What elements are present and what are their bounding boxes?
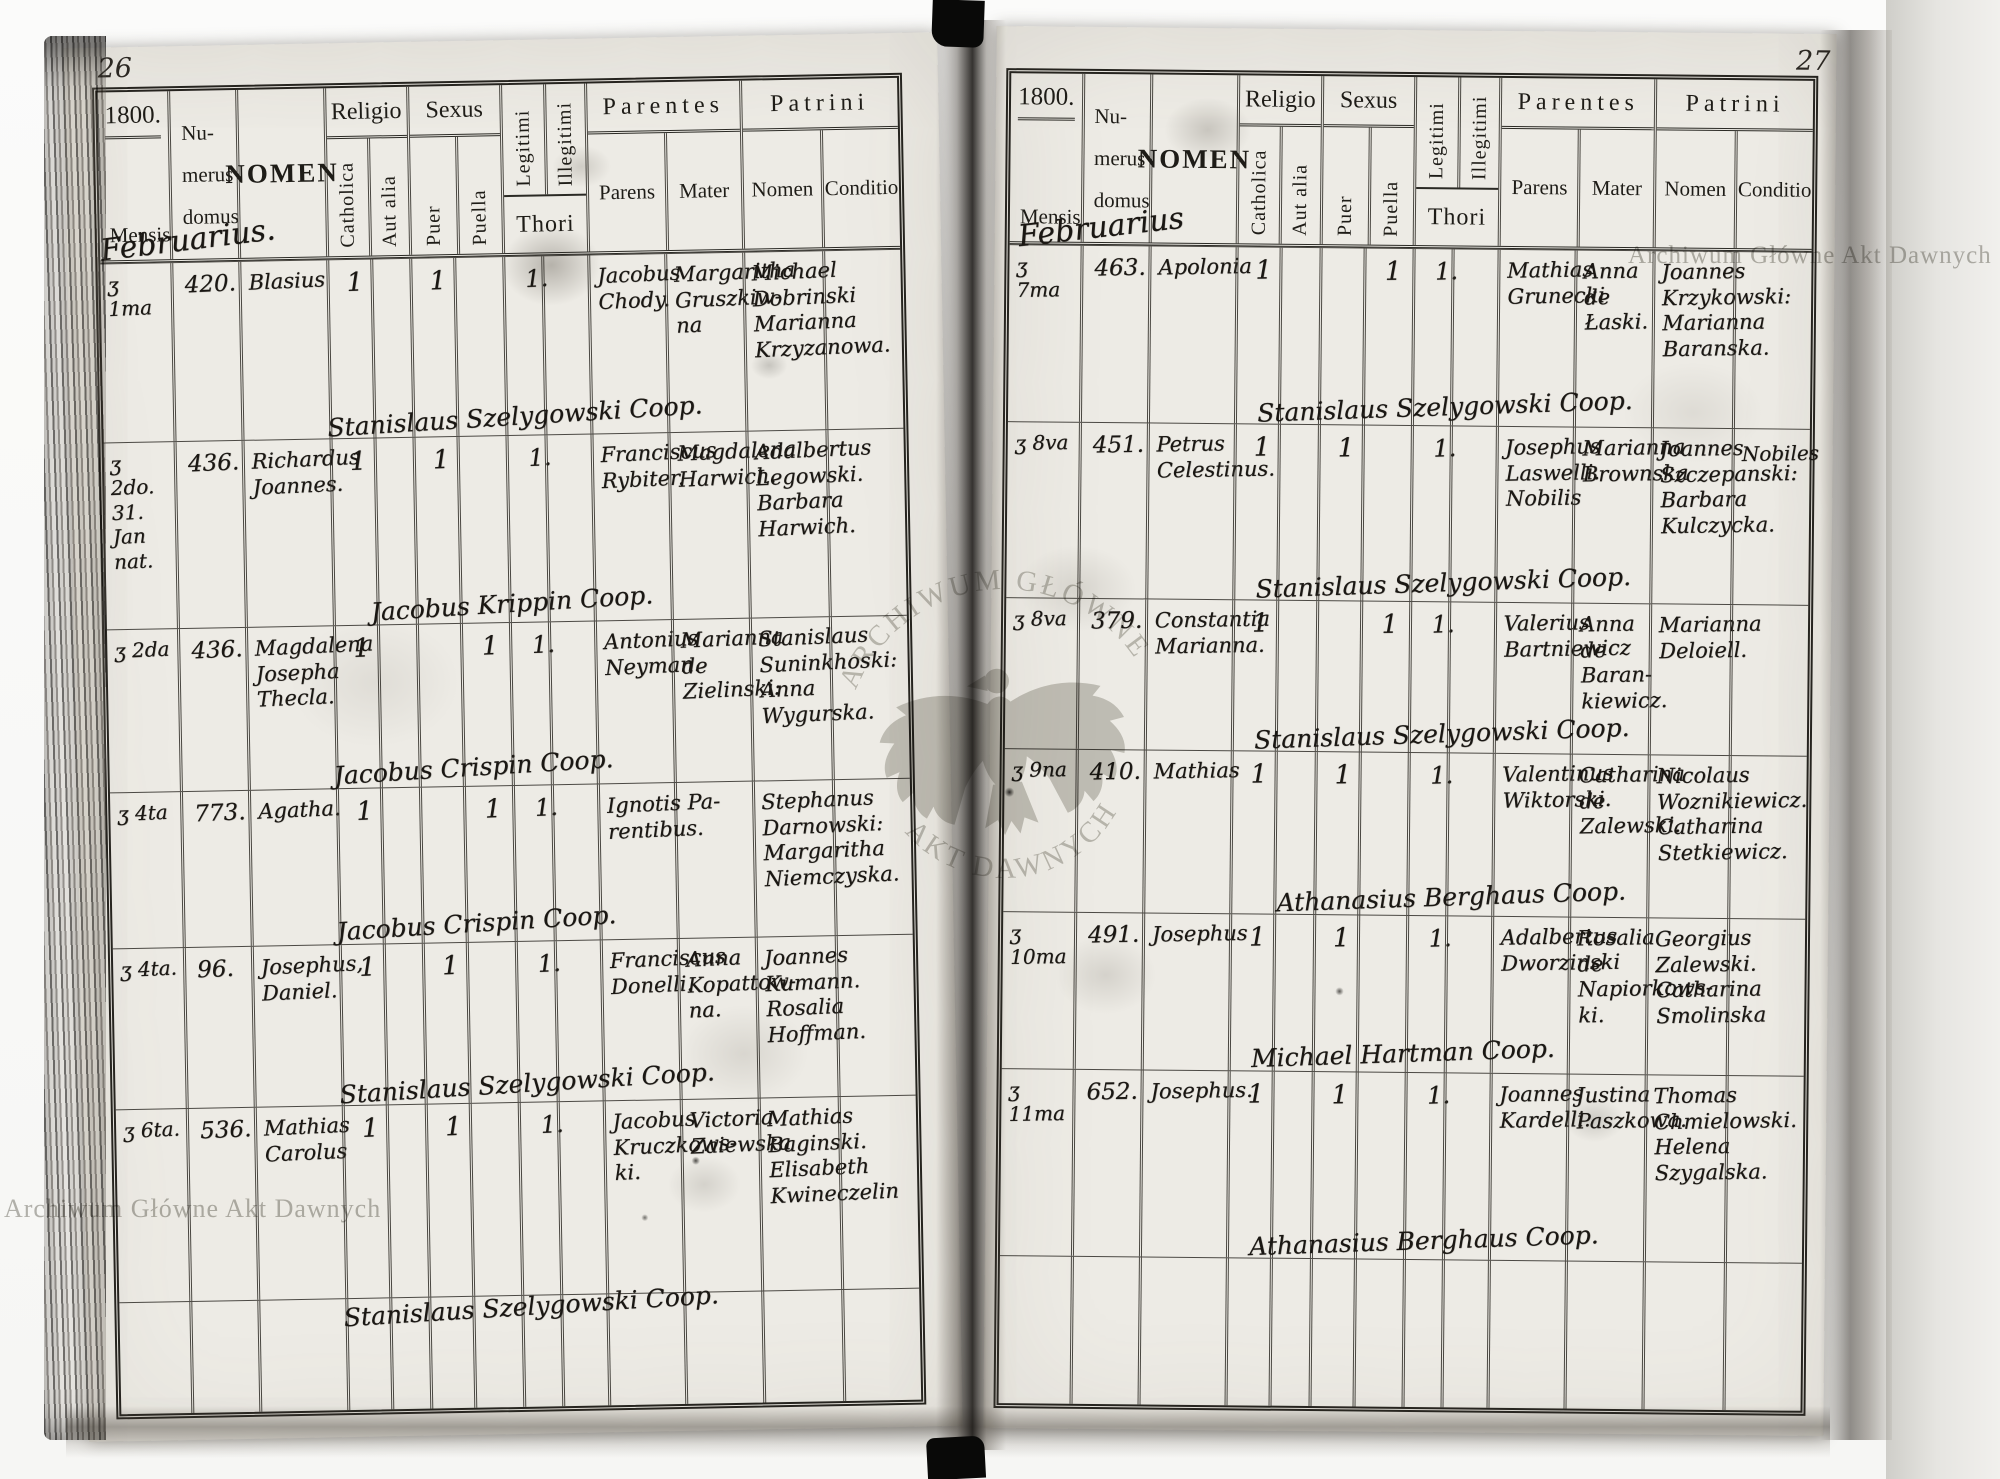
patrini-nomen-header: Nomen (742, 130, 822, 248)
mater-header: Mater (1577, 130, 1654, 248)
patrini-cell: Michael Dobrinski Marianna Krzyzanowa. (742, 251, 826, 430)
legitimi-header: Legitimi (1416, 77, 1458, 187)
puer-cell: 1 (424, 1104, 472, 1297)
legitimi-group-header: Legitimi Illegitimi Thori (499, 84, 588, 254)
parens-entry: Franciscus Donelli. (609, 946, 675, 1000)
patrini-entry: Georgius Zalewski. Catharina Smolinska (1655, 926, 1725, 1030)
religio-group-header: Religio Catholica Aut alia (323, 87, 409, 256)
patrini-cell: Joannes Kumann. Rosalia Hoffman. (754, 936, 838, 1097)
aut-alia-header: Aut alia (1279, 127, 1320, 244)
sexus-group-header: Sexus Puer Puella (1319, 76, 1414, 245)
register-page-right: 27 1800. Mensis Nu- merus domus NOMEN Re… (983, 26, 1836, 1436)
patrini-entry: Stephanus Darnowski: Margaritha Niemczys… (760, 787, 832, 892)
book-gutter-shadow (936, 20, 1006, 1450)
patrini-entry: Stanislaus Suninkhoski: Anna Wygurska. (757, 624, 829, 729)
patrini-cell: Nicolaus Woznikiewicz. Catharina Stetkie… (1646, 755, 1729, 918)
catholica-entry: 1 (348, 952, 380, 985)
binding-tie-bottom (926, 1436, 986, 1479)
house-cell: 96. (183, 947, 254, 1108)
puer-entry: 1 (1327, 433, 1359, 465)
register-row: ʒ 9na410.Mathias111.Valentinus Wiktorski… (1003, 748, 1807, 919)
mater-cell: Magdalena Harwich. (667, 432, 748, 619)
sexus-label: Sexus (409, 85, 500, 138)
mater-cell: Victoria Zaiewska (680, 1099, 761, 1292)
conditio-cell (1726, 919, 1805, 1076)
mater-entry: Marianna de Zielinski: (680, 626, 748, 706)
legitimi-group-header: Legitimi Illegitimi Thori (1412, 77, 1499, 246)
register-row: ʒ 10ma491.Josephus111.Adalbertus Dworzin… (1002, 911, 1805, 1076)
conditio-cell: Nobiles (1730, 429, 1809, 605)
patrini-entry: Marianna Deloiell. (1659, 612, 1728, 664)
parentes-group-header: Parentes Parens Mater (584, 81, 741, 252)
conditio-cell (835, 935, 916, 1096)
puer-entry: 1 (422, 445, 454, 478)
catholica-cell: 1 (341, 1105, 389, 1298)
catholica-entry: 1 (1239, 922, 1271, 954)
puer-entry: 1 (1324, 760, 1356, 792)
nomen-entry: Constantia Marianna. (1154, 607, 1229, 659)
patrini-entry: Nicolaus Woznikiewicz. Catharina Stetkie… (1657, 763, 1727, 867)
nomen-cell: Apolonia (1147, 246, 1236, 423)
patrini-entry: Adalbertus Legowski. Barbara Harwich. (754, 437, 826, 542)
house-cell: 451. (1077, 423, 1147, 599)
date-entry: ʒ 7ma (1016, 253, 1077, 303)
patrini-entry: Mathias Baginski. Elisabeth Kwineczelin (766, 1104, 838, 1209)
catholica-cell: 1 (1226, 1071, 1272, 1257)
puella-entry: 1 (469, 631, 506, 664)
mater-entry: Victoria Zaiewska (689, 1106, 756, 1160)
conditio-header: Conditio (1734, 131, 1813, 249)
register-row: ʒ 2do. 31. Jan nat.436.Richardus Joannes… (104, 428, 907, 630)
patrini-cell: Stephanus Darnowski: Margaritha Niemczys… (751, 780, 835, 936)
nomen-entry: Josephus. (1150, 1078, 1225, 1105)
nomen-entry: Agatha. (258, 796, 333, 825)
puer-header: Puer (1322, 127, 1368, 244)
catholica-entry: 1 (345, 796, 377, 829)
register-row: ʒ 8va379.Constantia Marianna.111.Valeriu… (1005, 597, 1808, 756)
aut_alia-cell (385, 1105, 428, 1298)
register-row: ʒ 8va451.Petrus Celestinus.111.Josephus … (1006, 421, 1810, 605)
nomen-cell: Richardus Joannes. (242, 439, 333, 627)
patrini-cell: Adalbertus Legowski. Barbara Harwich. (745, 430, 829, 617)
patrini-group-header: Patrini Nomen Conditio (739, 78, 900, 249)
date-cell: ʒ 7ma (1008, 245, 1080, 422)
patrini-group-header: Patrini Nomen Conditio (1653, 79, 1813, 249)
parentes-label: Parentes (587, 81, 739, 135)
patrini-entry: Joannes Krzykowski: Marianna Baranska. (1661, 259, 1731, 363)
parentes-label: Parentes (1502, 78, 1654, 130)
patrini-cell: Marianna Deloiell. (1648, 604, 1730, 755)
conditio-cell (832, 779, 912, 935)
house-entry: 536. (196, 1115, 252, 1145)
date-entry: ʒ 8va (1013, 606, 1074, 631)
register-page-left: 26 1800. Mensis Nu- merus domus NOMEN Re… (63, 32, 962, 1442)
mater-entry: Justina Paszkowa. (1576, 1082, 1642, 1134)
scanner-background (1886, 0, 2000, 1479)
patrini-entry: Thomas Chmielowski. Helena Szygalska. (1653, 1083, 1723, 1187)
religio-label: Religio (1240, 75, 1321, 127)
nomen-entry: Blasius (248, 267, 323, 296)
right-page-edge (1820, 30, 1892, 1440)
mater-cell: Marianna de Zielinski: (671, 619, 752, 782)
house-cell: 463. (1079, 246, 1149, 423)
parens-entry: Jacobus Kruczkows- ki. (612, 1107, 679, 1187)
patrini-cell: Stanislaus Suninkhoski: Anna Wygurska. (748, 617, 832, 780)
conditio-header: Conditio (820, 129, 900, 247)
date-entry: ʒ 9na (1011, 757, 1072, 782)
legitimi-header: Legitimi (502, 84, 545, 195)
illegitimi-header: Illegitimi (543, 84, 586, 195)
house-cell: 491. (1072, 913, 1142, 1070)
date-cell: ʒ 1ma (100, 263, 174, 442)
date-entry: ʒ 6ta. (123, 1116, 184, 1143)
register-row: ʒ 2da436.Magdalena Josepha Thecla.111.An… (107, 615, 910, 793)
puella-header: Puella (455, 136, 502, 254)
patrini-entry: Joannes Szczepanski: Barbara Kulczycka. (1660, 436, 1730, 540)
mater-entry: Rosalia de Napiorkows- ki. (1577, 925, 1643, 1028)
date-entry: ʒ 2do. 31. Jan nat. (109, 449, 175, 574)
mater-cell: Rosalia de Napiorkows- ki. (1567, 918, 1646, 1075)
nomen-entry: Josephus, Daniel. (261, 952, 337, 1006)
mater-header: Mater (664, 132, 742, 250)
nomen-cell: Magdalena Josepha Thecla. (245, 626, 335, 790)
date-cell: ʒ 8va (1006, 422, 1078, 598)
nomen-entry: Petrus Celestinus. (1156, 431, 1231, 483)
puer-header: Puer (410, 137, 457, 255)
parens-entry: Franciscus Rybiter. (600, 440, 666, 494)
mater-entry: Marianna Brownska (1583, 435, 1649, 487)
date-cell: ʒ 9na (1003, 749, 1075, 912)
conditio-cell (1732, 252, 1811, 429)
nomen-entry: Josephus (1152, 921, 1227, 948)
religio-label: Religio (326, 87, 407, 139)
catholica-entry: 1 (342, 633, 374, 666)
date-entry: ʒ 8va (1015, 430, 1076, 455)
house-cell: 773. (180, 791, 251, 947)
house-cell: 410. (1074, 750, 1144, 913)
patrini-label: Patrini (742, 78, 898, 132)
parens-entry: Josephus Laswelli. Nobilis (1505, 435, 1570, 513)
nomen-entry: Apolonia (1158, 254, 1233, 281)
date-cell: ʒ 8va (1005, 598, 1077, 749)
nomen-entry: Mathias (1153, 758, 1228, 785)
date-cell: ʒ 2do. 31. Jan nat. (104, 442, 178, 629)
mater-entry: Magdalena Harwich. (677, 439, 744, 493)
conditio-cell (1729, 605, 1808, 756)
mater-entry: Anna Kopattow- na. (686, 945, 754, 1025)
mater-entry: Anna de Baran- kiewicz. (1580, 611, 1646, 714)
parens-header: Parens (588, 133, 666, 251)
conditio-cell (838, 1096, 919, 1289)
parens-entry: Mathias Grunecki (1507, 258, 1572, 310)
puer-entry: 1 (434, 1112, 466, 1145)
catholica-entry: 1 (1242, 608, 1274, 640)
parens-entry: Valerius Bartniewicz (1504, 611, 1569, 663)
register-row: ʒ 6ta.536.Mathias Carolus111.Jacobus Kru… (116, 1095, 919, 1303)
book-spine (44, 36, 106, 1440)
date-cell: ʒ 11ma (1000, 1069, 1072, 1256)
puer-entry: 1 (419, 266, 451, 299)
register-scan: 26 1800. Mensis Nu- merus domus NOMEN Re… (0, 0, 2000, 1479)
register-table-right: 1800. Mensis Nu- merus domus NOMEN Relig… (993, 68, 1818, 1416)
register-row: ʒ 1ma420.Blasius111.Jacobus Chody.Margar… (100, 249, 903, 443)
date-cell: ʒ 2da (107, 629, 180, 792)
patrini-cell: Joannes Szczepanski: Barbara Kulczycka. (1649, 428, 1732, 604)
puella-cell (468, 1103, 520, 1296)
year-label: 1800. (104, 101, 161, 139)
thori-header: Thori (504, 194, 588, 254)
register-row: ʒ 4ta.96.Josephus, Daniel.111.Franciscus… (113, 934, 916, 1110)
patrini-entry: Michael Dobrinski Marianna Krzyzanowa. (751, 258, 823, 363)
nomen-entry: Mathias Carolus (264, 1113, 340, 1167)
house-cell: 436. (177, 628, 248, 791)
conditio-cell (1724, 1076, 1804, 1263)
religio-group-header: Religio Catholica Aut alia (1236, 75, 1321, 244)
house-cell: 379. (1075, 599, 1145, 750)
date-entry: ʒ 4ta (117, 799, 178, 826)
house-entry: 96. (193, 954, 249, 984)
thori-cell: 1. (517, 1102, 560, 1295)
register-row: ʒ 11ma652.Josephus.111.Joannes Kardelli.… (1000, 1068, 1804, 1263)
nomen-cell: Petrus Celestinus. (1145, 423, 1234, 599)
sexus-group-header: Sexus Puer Puella (406, 85, 502, 255)
patrini-cell: Joannes Krzykowski: Marianna Baranska. (1651, 251, 1734, 428)
puella-entry: 1 (472, 794, 509, 827)
conditio-cell (1727, 756, 1806, 919)
catholica-entry: 1 (1237, 1079, 1269, 1111)
date-entry: ʒ 1ma (107, 270, 170, 321)
nomen-cell: Agatha. (248, 789, 338, 946)
nomen-cell: Josephus. (1139, 1070, 1228, 1257)
nomen-entry: Magdalena Josepha Thecla. (255, 633, 333, 713)
catholica-entry: 1 (336, 267, 368, 300)
mater-entry: Anna de Łaski. (1584, 258, 1650, 336)
house-entry: 379. (1086, 607, 1142, 636)
date-cell: ʒ 4ta. (113, 948, 186, 1109)
conditio-cell (826, 429, 907, 616)
house-entry: 410. (1085, 758, 1141, 787)
nomen-cell: Blasius (239, 260, 329, 440)
parens-entry: Valentinus Wiktorski. (1502, 762, 1567, 814)
puella-entry: 1 (1369, 609, 1405, 641)
date-cell: ʒ 6ta. (116, 1109, 190, 1302)
house-entry: 773. (190, 798, 246, 828)
house-entry: 451. (1088, 431, 1144, 460)
nomen-cell: Mathias Carolus (254, 1106, 345, 1300)
binding-tie-top (931, 0, 985, 48)
mater-entry: Margaritha Gruszkiw- na (673, 260, 741, 340)
catholica-cell: 1 (1229, 751, 1275, 913)
patrini-entry: Joannes Kumann. Rosalia Hoffman. (763, 943, 835, 1048)
sexus-label: Sexus (1323, 76, 1414, 128)
parens-entry: Joannes Kardelli. (1499, 1082, 1564, 1134)
illegitimi-header: Illegitimi (1457, 77, 1499, 187)
puer-entry: 1 (1322, 923, 1354, 955)
parentes-group-header: Parentes Parens Mater (1498, 78, 1654, 247)
puella-entry: 1 (1373, 257, 1409, 289)
empty-tail-row (999, 1255, 1802, 1411)
patrini-cell: Thomas Chmielowski. Helena Szygalska. (1643, 1075, 1726, 1262)
catholica-entry: 1 (1244, 432, 1276, 464)
house-entry: 463. (1090, 254, 1146, 283)
parens-cell: Jacobus Kruczkows- ki. (603, 1100, 683, 1293)
house-entry: 436. (184, 448, 240, 478)
date-entry: ʒ 4ta. (120, 955, 181, 982)
aut-alia-header: Aut alia (367, 138, 409, 256)
parens-entry: Ignotis Pa- rentibus. (607, 788, 740, 845)
puer-entry: 1 (1321, 1080, 1353, 1112)
patrini-label: Patrini (1657, 79, 1813, 131)
patrini-cell: Georgius Zalewski. Catharina Smolinska (1645, 918, 1727, 1075)
illeg-cell (556, 1101, 606, 1294)
parens-entry: Antonius Neyman. (604, 627, 670, 681)
date-cell: ʒ 4ta (110, 792, 183, 948)
house-cell: 436. (174, 441, 245, 628)
patrini-cell: Mathias Baginski. Elisabeth Kwineczelin (757, 1097, 841, 1290)
date-entry: ʒ 2da (114, 636, 175, 663)
house-entry: 436. (187, 635, 243, 665)
parens-entry: Jacobus Chody. (597, 261, 663, 315)
conditio-cell (829, 616, 910, 779)
house-cell: 420. (171, 262, 242, 441)
patrini-nomen-header: Nomen (1656, 130, 1735, 248)
parens-header: Parens (1501, 129, 1578, 247)
nomen-cell: Constantia Marianna. (1144, 599, 1233, 750)
parens-entry: Adalbertus Dworzinski (1501, 925, 1566, 977)
nomen-cell: Josephus (1140, 913, 1229, 1070)
puella-header: Puella (1367, 128, 1413, 245)
conditio-entry: Nobiles (1742, 437, 1807, 466)
year-label: 1800. (1018, 83, 1075, 121)
puer-entry: 1 (431, 951, 463, 984)
mater-entry: Catharina de Zalewski. (1579, 762, 1645, 840)
house-entry: 652. (1082, 1078, 1138, 1107)
date-entry: ʒ 11ma (1008, 1077, 1069, 1127)
nomen-cell: Josephus, Daniel. (251, 945, 341, 1107)
nomen-entry: Richardus Joannes. (251, 446, 327, 500)
nomen-cell: Mathias (1142, 750, 1231, 913)
house-entry: 420. (180, 269, 236, 299)
register-row: ʒ 7ma463.Apolonia111.Mathias GruneckiAnn… (1008, 244, 1812, 429)
house-cell: 652. (1071, 1070, 1141, 1257)
house-entry: 491. (1083, 921, 1139, 950)
catholica-entry: 1 (351, 1113, 383, 1146)
catholica-entry: 1 (339, 446, 371, 479)
catholica-entry: 1 (1240, 759, 1272, 791)
conditio-cell (822, 250, 903, 429)
house-cell: 536. (186, 1108, 258, 1301)
register-table-left: 1800. Mensis Nu- merus domus NOMEN Relig… (92, 73, 926, 1420)
thori-header: Thori (1415, 187, 1498, 246)
register-row: ʒ 4ta773.Agatha.111.Ignotis Pa- rentibus… (110, 778, 913, 949)
catholica-entry: 1 (1245, 255, 1277, 287)
date-cell: ʒ 10ma (1002, 912, 1074, 1069)
date-entry: ʒ 10ma (1010, 920, 1071, 970)
